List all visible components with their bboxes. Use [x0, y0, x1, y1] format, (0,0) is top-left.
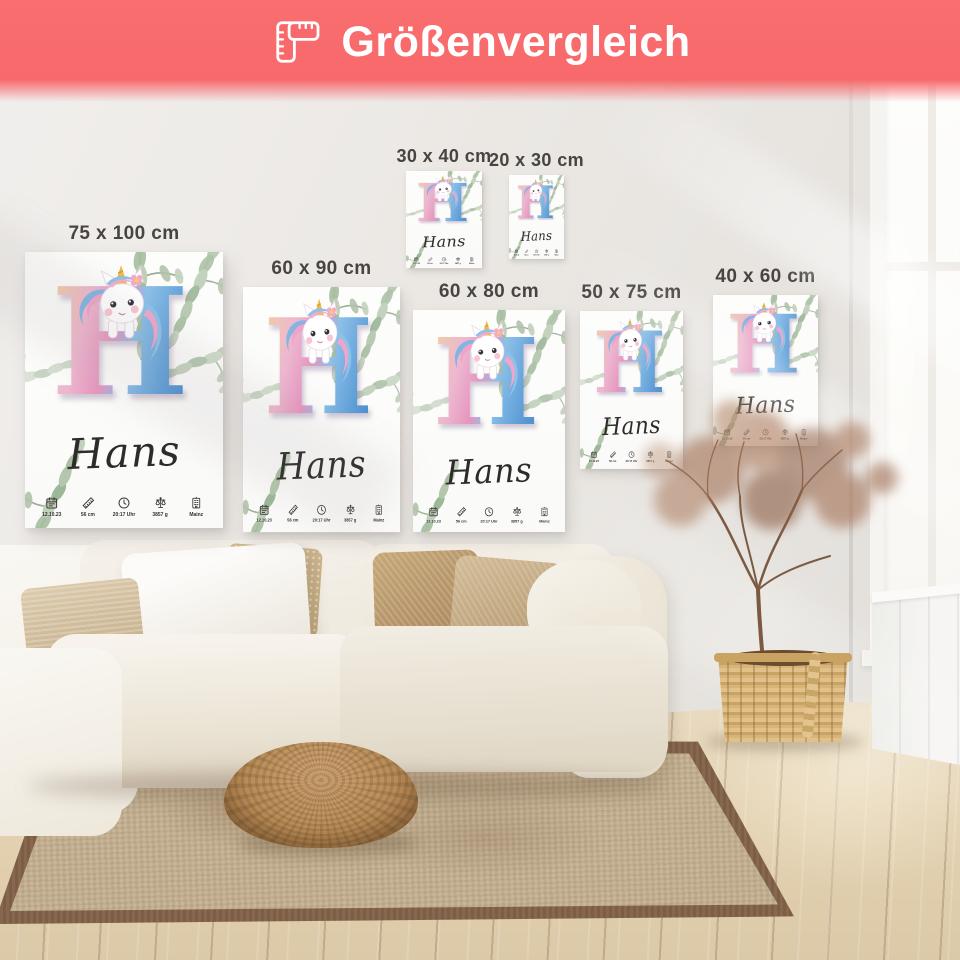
- scale-icon: [153, 496, 167, 510]
- stat-weight: 3857 g: [143, 496, 177, 518]
- stat-label: 3857 g: [511, 519, 523, 524]
- stat-time: 20:17 Uhr: [532, 249, 541, 256]
- stat-weight: 3857 g: [776, 428, 794, 440]
- birth-stats: 12.10.23 56 cm 20:17 Uhr 3857 g Mainz: [410, 257, 478, 265]
- unicorn-illustration: [66, 264, 183, 392]
- stat-place: Mainz: [660, 451, 678, 464]
- poster-60x80: 60 x 80 cm H Hans 12.10.23 56 cm: [413, 310, 565, 532]
- stat-time: 20:17 Uhr: [107, 496, 141, 518]
- building-icon: [539, 506, 550, 517]
- unicorn-illustration: [520, 179, 552, 218]
- clock-icon: [117, 496, 131, 510]
- stat-height: 56 cm: [737, 428, 755, 440]
- clock-icon: [535, 249, 539, 253]
- poster-name: Hans: [580, 410, 683, 442]
- stat-label: Mainz: [189, 512, 203, 518]
- poster-name: Hans: [25, 425, 223, 481]
- stat-label: 56 cm: [427, 263, 432, 265]
- building-icon: [665, 451, 672, 459]
- stat-date: 12.10.23: [251, 504, 278, 524]
- stat-label: 20:17 Uhr: [113, 512, 136, 518]
- poster-name: Hans: [413, 449, 565, 494]
- building-icon: [469, 257, 474, 262]
- stat-time: 20:17 Uhr: [476, 506, 502, 524]
- clock-icon: [762, 428, 769, 436]
- building-icon: [555, 249, 559, 253]
- stat-label: Mainz: [539, 519, 550, 524]
- stat-weight: 3857 g: [504, 506, 530, 524]
- stat-weight: 3857 g: [337, 504, 364, 524]
- clock-icon: [441, 257, 446, 262]
- stat-label: 56 cm: [287, 518, 298, 523]
- clock-icon: [316, 504, 327, 516]
- ruler-icon: [287, 504, 298, 516]
- stat-label: 56 cm: [743, 437, 750, 440]
- poster-60x90: 60 x 90 cm H Hans 12.10.23 56 cm: [243, 287, 400, 532]
- stat-label: 20:17 Uhr: [480, 519, 497, 524]
- building-icon: [189, 496, 203, 510]
- size-label: 20 x 30 cm: [489, 150, 584, 171]
- stat-label: 20:17 Uhr: [626, 460, 638, 463]
- calendar-icon: [590, 451, 597, 459]
- stat-label: 3857 g: [152, 512, 167, 518]
- size-label: 40 x 60 cm: [715, 266, 815, 288]
- poster-name: Hans: [509, 227, 564, 244]
- poster-art: H Hans 12.10.23 56 cm 20:17 Uhr 3: [413, 310, 565, 532]
- stat-label: 12.10.23: [42, 512, 61, 518]
- ruler-icon: [525, 249, 529, 253]
- calendar-icon: [724, 428, 731, 436]
- scale-icon: [545, 249, 549, 253]
- stat-label: Mainz: [469, 263, 474, 265]
- poster-art: H Hans 12.10.23 56 cm 20:17 Uhr 3: [580, 311, 683, 469]
- stat-place: Mainz: [179, 496, 213, 518]
- stat-place: Mainz: [365, 504, 392, 524]
- ruler-icon: [609, 451, 616, 459]
- stat-label: 12.10.23: [722, 437, 732, 440]
- stat-date: 12.10.23: [512, 249, 521, 256]
- header-title: Größenvergleich: [341, 18, 690, 67]
- size-label: 50 x 75 cm: [581, 282, 681, 304]
- stat-label: 20:17 Uhr: [760, 437, 772, 440]
- poster-30x40: 30 x 40 cm H Hans 12.10.23 56 cm: [406, 171, 482, 268]
- header-banner: Größenvergleich: [0, 0, 960, 102]
- calendar-icon: [414, 257, 419, 262]
- stat-label: 56 cm: [609, 460, 616, 463]
- stat-label: Mainz: [373, 518, 384, 523]
- ruler-icon: [427, 257, 432, 262]
- stat-label: 3857 g: [781, 437, 789, 440]
- stat-label: 20:17 Uhr: [440, 263, 449, 265]
- size-label: 30 x 40 cm: [396, 146, 491, 167]
- poster-name: Hans: [243, 440, 400, 490]
- size-label: 60 x 90 cm: [271, 258, 371, 280]
- stat-label: Mainz: [800, 437, 807, 440]
- stat-label: 3857 g: [344, 518, 356, 523]
- birth-stats: 12.10.23 56 cm 20:17 Uhr 3857 g Mainz: [251, 504, 392, 524]
- poster-20x30: 20 x 30 cm H Hans 12.10.23 56 cm: [509, 175, 564, 259]
- building-icon: [800, 428, 807, 436]
- size-label: 75 x 100 cm: [68, 223, 179, 245]
- unicorn-illustration: [275, 298, 368, 412]
- stat-label: 3857 g: [455, 263, 461, 265]
- stat-label: Mainz: [555, 254, 559, 256]
- stat-label: 56 cm: [525, 254, 529, 256]
- stat-label: 3857 g: [646, 460, 654, 463]
- stat-label: 12.10.23: [426, 519, 441, 524]
- stat-label: 12.10.23: [514, 254, 519, 256]
- poster-art: H Hans 12.10.23 56 cm 20:17 Uhr 3: [243, 287, 400, 532]
- stat-time: 20:17 Uhr: [308, 504, 335, 524]
- poster-art: H Hans 12.10.23 56 cm 20:17 Uhr 3: [713, 295, 818, 446]
- stat-place: Mainz: [465, 257, 478, 265]
- stat-height: 56 cm: [448, 506, 474, 524]
- poster-50x75: 50 x 75 cm H Hans 12.10.23 56 cm: [580, 311, 683, 469]
- calendar-icon: [428, 506, 439, 517]
- stat-place: Mainz: [532, 506, 558, 524]
- stat-date: 12.10.23: [718, 428, 736, 440]
- stat-label: 20:17 Uhr: [533, 254, 539, 256]
- poster-size-comparison: 75 x 100 cm H Hans 12.10.23 56 cm: [0, 0, 960, 960]
- poster-art: H Hans 12.10.23 56 cm 20:17 Uhr 3: [25, 252, 223, 528]
- birth-stats: 12.10.23 56 cm 20:17 Uhr 3857 g Mainz: [512, 249, 562, 256]
- scale-icon: [647, 451, 654, 459]
- stat-date: 12.10.23: [35, 496, 69, 518]
- poster-75x100: 75 x 100 cm H Hans 12.10.23 56 cm: [25, 252, 223, 528]
- ruler-icon: [743, 428, 750, 436]
- poster-name: Hans: [406, 232, 482, 252]
- stat-date: 12.10.23: [585, 451, 603, 464]
- stat-label: 12.10.23: [413, 263, 420, 265]
- header-content: Größenvergleich: [269, 14, 690, 70]
- calendar-icon: [45, 496, 59, 510]
- birth-stats: 12.10.23 56 cm 20:17 Uhr 3857 g Mainz: [718, 428, 813, 440]
- poster-40x60: 40 x 60 cm H Hans 12.10.23 56 cm: [713, 295, 818, 446]
- stat-weight: 3857 g: [642, 451, 660, 464]
- birth-stats: 12.10.23 56 cm 20:17 Uhr 3857 g Mainz: [585, 451, 678, 464]
- stat-height: 56 cm: [424, 257, 437, 265]
- unicorn-illustration: [601, 318, 662, 391]
- stat-weight: 3857 g: [451, 257, 464, 265]
- stat-date: 12.10.23: [421, 506, 447, 524]
- calendar-icon: [259, 504, 270, 516]
- stat-height: 56 cm: [280, 504, 307, 524]
- stat-label: 12.10.23: [589, 460, 599, 463]
- unicorn-illustration: [735, 302, 797, 372]
- stat-label: 56 cm: [81, 512, 95, 518]
- stat-time: 20:17 Uhr: [757, 428, 775, 440]
- clock-icon: [484, 506, 495, 517]
- stat-label: 3857 g: [544, 254, 548, 256]
- scale-icon: [345, 504, 356, 516]
- stat-label: Mainz: [666, 460, 673, 463]
- stat-height: 56 cm: [71, 496, 105, 518]
- stat-date: 12.10.23: [410, 257, 423, 265]
- stat-place: Mainz: [795, 428, 813, 440]
- poster-name: Hans: [713, 389, 818, 420]
- scale-icon: [455, 257, 460, 262]
- unicorn-illustration: [422, 175, 467, 220]
- birth-stats: 12.10.23 56 cm 20:17 Uhr 3857 g Mainz: [35, 496, 213, 518]
- folding-ruler-icon: [269, 14, 325, 70]
- calendar-icon: [515, 249, 519, 253]
- stat-label: 12.10.23: [257, 518, 272, 523]
- stat-time: 20:17 Uhr: [623, 451, 641, 464]
- unicorn-illustration: [444, 320, 534, 423]
- stat-height: 56 cm: [522, 249, 531, 256]
- stat-weight: 3857 g: [542, 249, 551, 256]
- ruler-icon: [81, 496, 95, 510]
- ruler-icon: [456, 506, 467, 517]
- stat-label: 20:17 Uhr: [313, 518, 331, 523]
- scale-icon: [781, 428, 788, 436]
- building-icon: [373, 504, 384, 516]
- stat-label: 56 cm: [456, 519, 467, 524]
- stat-height: 56 cm: [604, 451, 622, 464]
- size-label: 60 x 80 cm: [439, 281, 539, 303]
- poster-art: H Hans 12.10.23 56 cm 20:17 Uhr 3: [406, 171, 482, 268]
- scale-icon: [511, 506, 522, 517]
- stat-place: Mainz: [552, 249, 561, 256]
- clock-icon: [628, 451, 635, 459]
- stat-time: 20:17 Uhr: [438, 257, 451, 265]
- birth-stats: 12.10.23 56 cm 20:17 Uhr 3857 g Mainz: [421, 506, 558, 524]
- poster-art: H Hans 12.10.23 56 cm 20:17 Uhr 3: [509, 175, 564, 259]
